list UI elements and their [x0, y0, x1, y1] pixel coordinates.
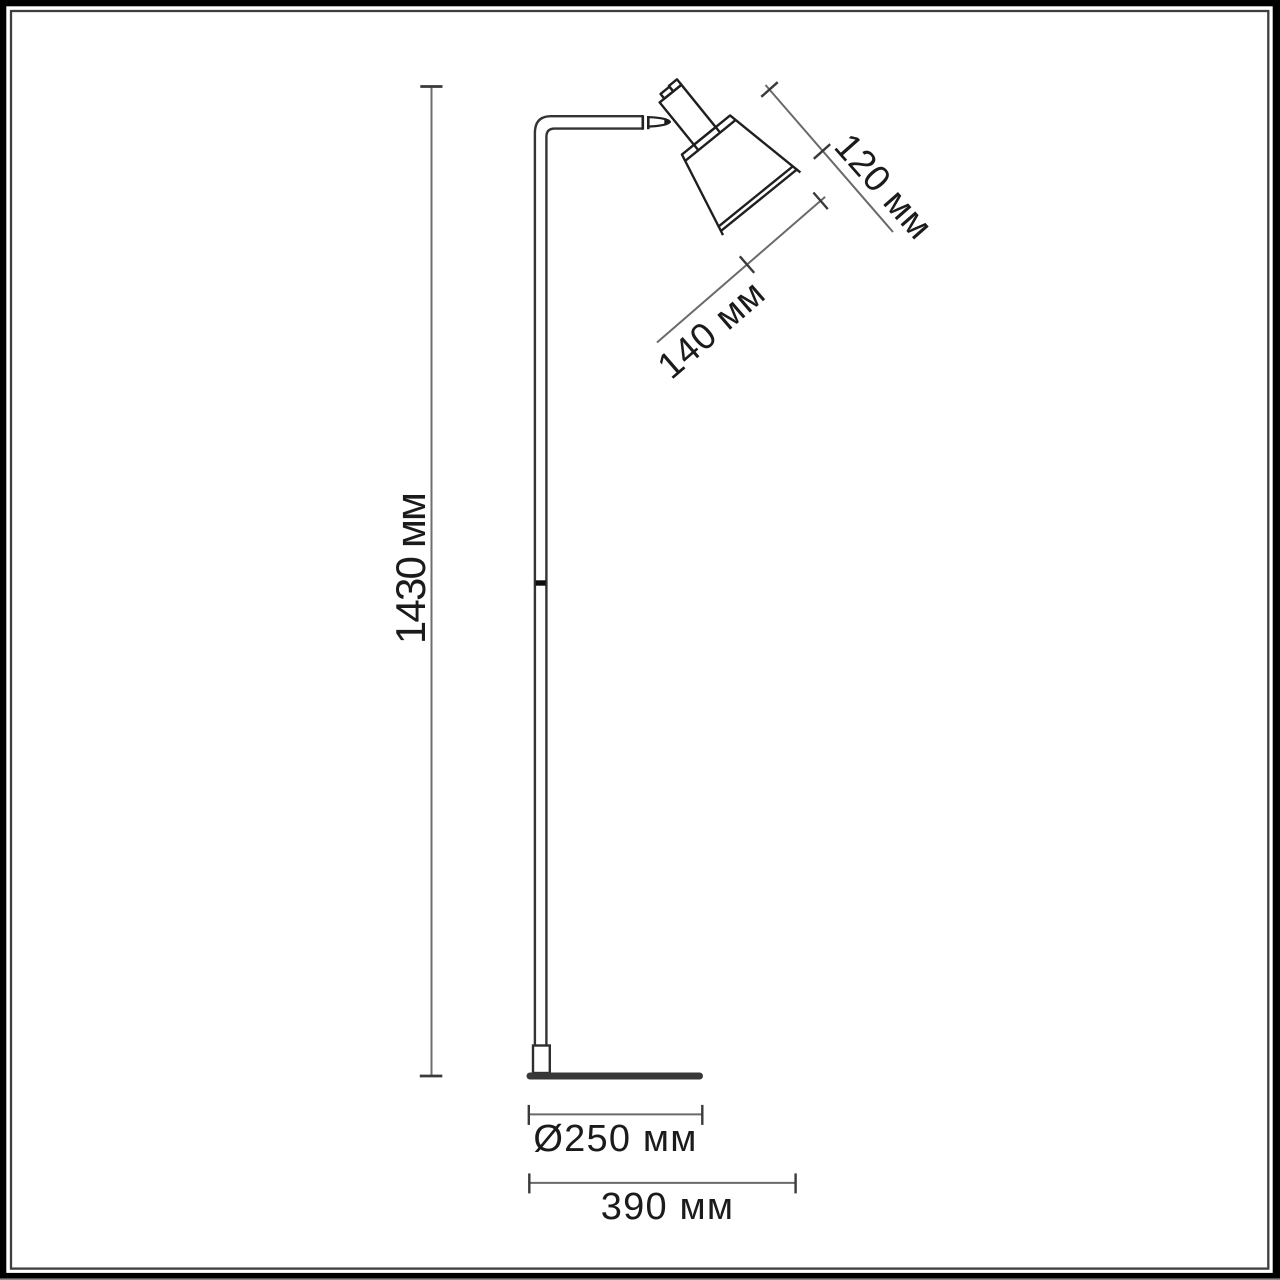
svg-text:Ø250 мм: Ø250 мм [533, 1118, 697, 1160]
svg-text:390 мм: 390 мм [601, 1186, 734, 1228]
svg-text:1430 мм: 1430 мм [387, 494, 434, 644]
